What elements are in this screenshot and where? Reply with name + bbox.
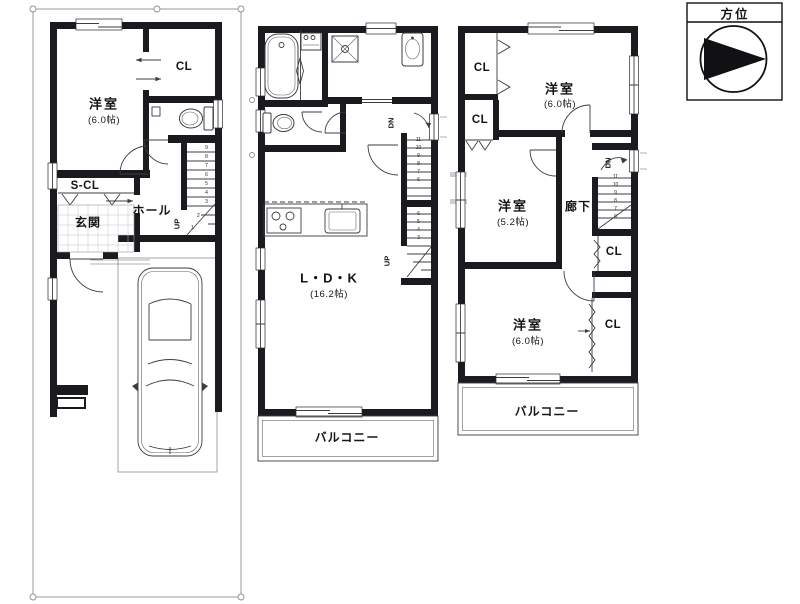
floor2-ldk-label: L・D・K [300,268,358,287]
floor1-stair-num-2: 2 [197,213,200,219]
floor-plan-drawing [0,0,800,604]
floor1-stair-num-1: 1 [191,225,194,231]
floor3-room-bottom-label: 洋室 [513,315,543,334]
floor1-shoe-closet-label: S-CL [71,180,100,192]
floor3-stair-numbers: 11 10 9 8 7 6 [610,173,621,221]
toilet-icon-2f [263,113,294,133]
floor1-hall-label: ホール [132,202,171,219]
floor3-closet4-label: CL [605,319,621,331]
car-icon [132,268,208,456]
floor3-room-top-label: 洋室 [545,79,575,98]
floor2-stair-numbers-down: 11 10 9 8 7 6 [413,136,424,184]
toilet-icon-1f [152,107,213,130]
floor3-stair-down-label: DN [604,158,613,169]
floor2-stair-up-label: UP [383,256,392,266]
floor2-doors [302,112,431,175]
bathtub-icon [265,30,304,100]
floor3-balcony-label: バルコニー [515,403,580,420]
washing-machine-icon [301,33,321,50]
vanity-icon [402,33,423,66]
stove-icon [267,208,301,233]
kitchen-counter [264,202,367,236]
floor3-closet1-label: CL [474,62,490,74]
floor2-stair-down-label: DN [387,118,396,129]
floor1-entrance-label: 玄関 [75,214,101,231]
floor3-room-mid-label: 洋室 [498,196,528,215]
floor3-room-bottom-area: (6.0帖) [512,333,544,347]
floor2-ldk-area: (16.2帖) [310,286,348,300]
floor1-stair-numbers: 9 8 7 6 5 4 3 [202,144,211,207]
floor1-closet-label: CL [176,61,192,73]
floor1-room-label: 洋室 [89,94,119,113]
floor1-stair-up-label: UP [173,219,182,229]
floor3-room-top-area: (6.0帖) [544,96,576,110]
floor2-balcony-label: バルコニー [315,429,380,446]
floor3-room-mid-area: (5.2帖) [497,214,529,228]
sink-icon [325,204,360,233]
washbasin-pan-icon [332,36,358,62]
compass-title: 方位 [720,4,749,23]
floor3-closet2-label: CL [472,114,488,126]
floor3-corridor-label: 廊下 [565,198,591,215]
shoe-closet-doors [58,193,134,205]
floor3-closet3-label: CL [606,246,622,258]
floor2-stair-numbers-up: 6 5 4 3 [414,210,423,242]
floor-plan-page: 洋室 (6.0帖) CL S-CL 玄関 ホール UP 9 8 7 6 5 4 … [0,0,800,604]
floor1-room-area: (6.0帖) [88,112,120,126]
